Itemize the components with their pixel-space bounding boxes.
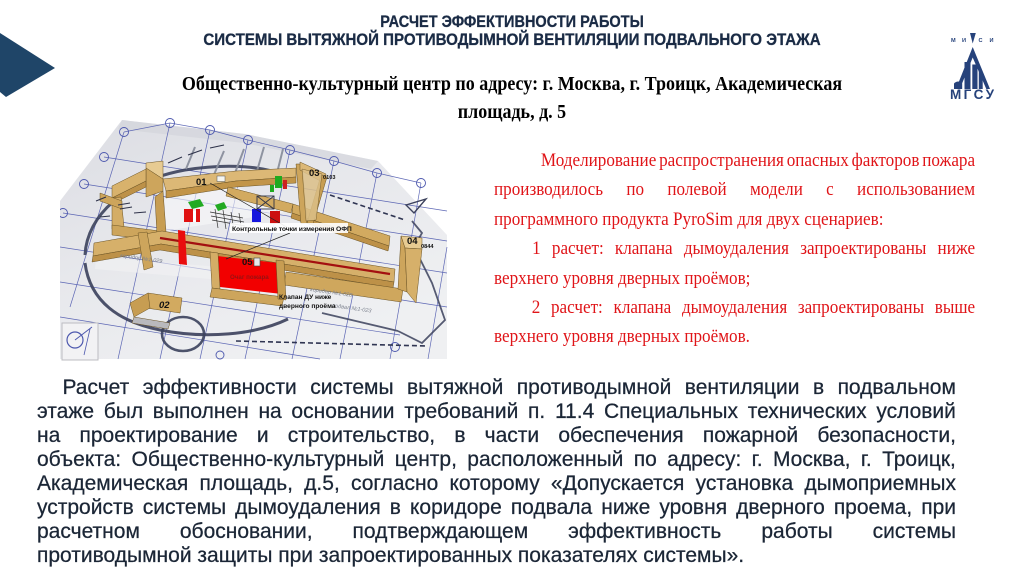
svg-text:02: 02: [159, 300, 170, 311]
svg-text:Контрольные точки измерения ОФ: Контрольные точки измерения ОФП: [232, 226, 352, 233]
svg-text:01: 01: [196, 177, 207, 188]
svg-text:03: 03: [309, 168, 320, 179]
svg-text:И: И: [990, 38, 994, 44]
svg-text:0103: 0103: [323, 175, 335, 181]
svg-text:05: 05: [242, 257, 253, 268]
svg-text:Очаг пожара: Очаг пожара: [230, 274, 269, 281]
svg-text:04: 04: [407, 236, 418, 247]
svg-text:Клапан ДУ ниже: Клапан ДУ ниже: [279, 294, 332, 301]
svg-text:И: И: [962, 38, 966, 44]
svg-text:дверного проёма: дверного проёма: [279, 303, 336, 310]
svg-text:М: М: [951, 38, 956, 44]
svg-text:С: С: [979, 38, 983, 44]
svg-text:0844: 0844: [421, 244, 434, 250]
svg-text:МГСУ: МГСУ: [950, 87, 995, 102]
